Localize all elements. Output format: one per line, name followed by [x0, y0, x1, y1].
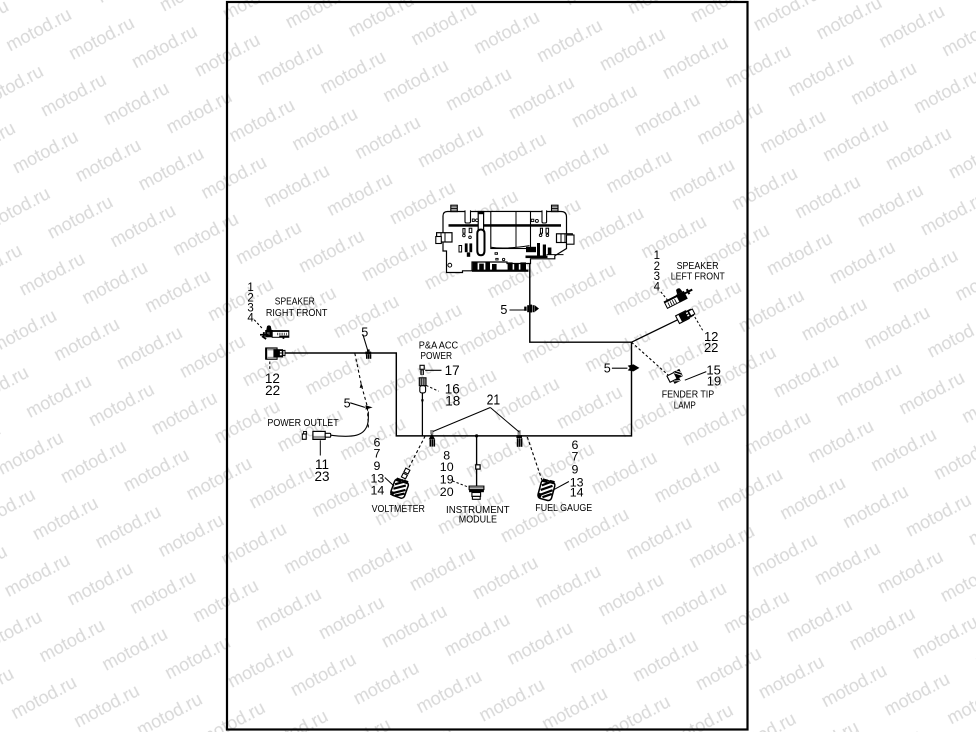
- svg-text:RIGHT FRONT: RIGHT FRONT: [266, 308, 328, 319]
- svg-text:POWER: POWER: [420, 351, 452, 362]
- svg-text:7: 7: [572, 449, 579, 463]
- svg-text:5: 5: [361, 325, 368, 339]
- svg-text:FENDER TIP: FENDER TIP: [662, 390, 715, 401]
- svg-text:LAMP: LAMP: [674, 400, 696, 411]
- svg-text:MODULE: MODULE: [459, 515, 497, 526]
- svg-text:17: 17: [445, 363, 460, 378]
- svg-text:14: 14: [371, 484, 385, 498]
- svg-text:FUEL GAUGE: FUEL GAUGE: [535, 503, 592, 514]
- svg-text:POWER OUTLET: POWER OUTLET: [267, 418, 338, 429]
- svg-text:4: 4: [654, 282, 661, 294]
- svg-text:5: 5: [500, 303, 507, 317]
- svg-text:14: 14: [570, 485, 584, 499]
- svg-text:4: 4: [247, 313, 254, 325]
- svg-text:5: 5: [604, 361, 611, 375]
- svg-text:22: 22: [704, 340, 718, 355]
- svg-text:P&A ACC: P&A ACC: [419, 340, 458, 351]
- svg-text:VOLTMETER: VOLTMETER: [372, 504, 425, 515]
- svg-text:9: 9: [572, 463, 579, 477]
- svg-text:21: 21: [487, 392, 501, 408]
- svg-text:5: 5: [344, 397, 351, 411]
- svg-text:18: 18: [445, 394, 460, 409]
- svg-text:SPEAKER: SPEAKER: [275, 296, 315, 307]
- svg-text:23: 23: [314, 469, 329, 484]
- svg-text:19: 19: [707, 373, 721, 388]
- svg-text:LEFT FRONT: LEFT FRONT: [671, 272, 725, 283]
- svg-text:22: 22: [265, 383, 280, 398]
- svg-text:20: 20: [440, 485, 454, 499]
